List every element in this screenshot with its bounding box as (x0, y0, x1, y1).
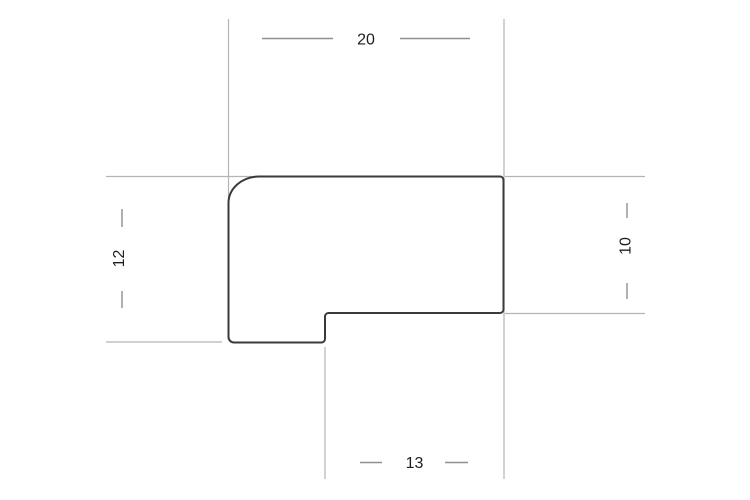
profile-outline (229, 177, 504, 343)
dimension-label-top: 20 (357, 32, 375, 49)
profile-drawing: 20 12 10 13 (0, 0, 750, 500)
dimension-label-left: 12 (111, 250, 128, 268)
dimension-label-right: 10 (618, 237, 635, 255)
dimension-label-bottom: 13 (406, 455, 424, 472)
drawing-canvas: 20 12 10 13 (0, 0, 750, 500)
